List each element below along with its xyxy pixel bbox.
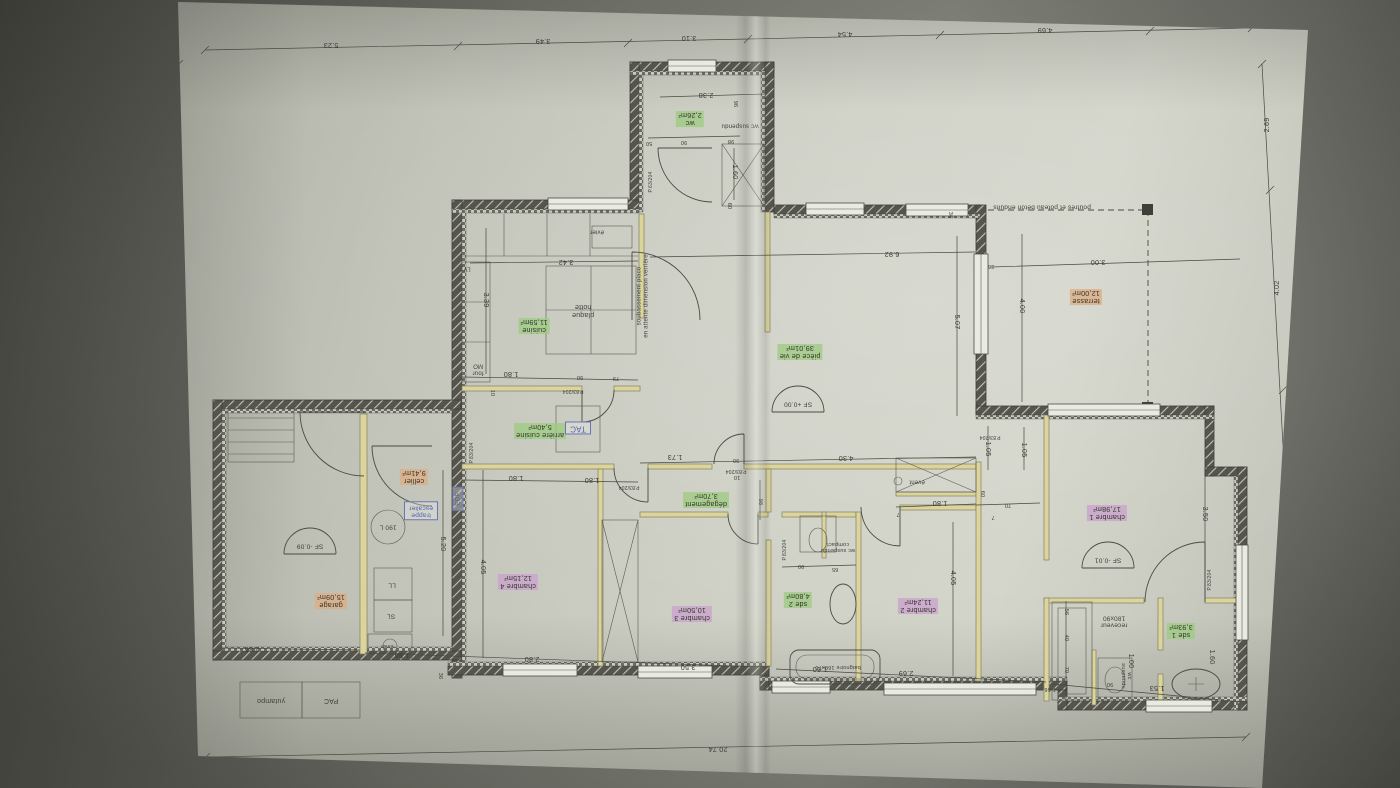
equipment-label: TAC: [565, 422, 591, 435]
annotation-text: évent: [909, 478, 925, 485]
annotation-text: P.83/204: [619, 483, 640, 489]
room-label: arrière cuisine 5,40m²: [514, 423, 566, 439]
dimension-text: 60: [979, 491, 985, 498]
room-label: sde 1 3,93m²: [1167, 623, 1195, 639]
dimension-text: 4.05: [949, 571, 957, 586]
dimension-text: 7: [991, 514, 994, 520]
dimension-text: 79: [613, 375, 620, 381]
dimension-text: 98: [757, 499, 763, 506]
dimension-text: 6.92: [885, 250, 900, 258]
annotation-text: receveur 180x90: [1101, 614, 1128, 629]
annotation-text: P.63/204: [649, 172, 655, 193]
annotation-text: évier: [381, 643, 394, 649]
doors-layer: [300, 148, 1205, 602]
annotation-text: évier: [590, 228, 604, 235]
room-label: chambre 3 10,50m²: [672, 606, 712, 622]
annotation-text: plaque hotte: [572, 302, 594, 318]
dimension-text: 98: [728, 138, 735, 144]
dimension-text: 10: [734, 474, 741, 480]
annotation-text: wc suspendu compact: [821, 541, 855, 553]
dimension-text: 1.80: [509, 474, 524, 482]
dimension-text: 70: [1005, 502, 1012, 508]
dimension-text: 65: [832, 566, 839, 572]
equipment-label: trappe escalier: [404, 502, 438, 521]
dimension-text: 3.42: [559, 258, 574, 266]
room-label: cuisine 11,59m²: [518, 318, 549, 334]
fixtures-layer: [228, 144, 1220, 718]
room-label: pièce de vie 39,01m²: [778, 344, 823, 360]
annotation-text: PAC: [324, 696, 338, 704]
dimension-text: 4.69: [1038, 26, 1053, 34]
dimension-text: 12.58: [170, 381, 178, 400]
dimension-text: 60: [726, 203, 732, 210]
dimension-text: 90: [1107, 681, 1114, 687]
annotation-text: P.83/204: [783, 540, 789, 561]
annotation-text: four MO: [472, 362, 483, 375]
annotation-text: LL: [388, 581, 396, 588]
annotation-text: P.83/204: [470, 443, 476, 464]
floor-level-marker: SF +0.00: [784, 400, 812, 407]
annotation-text: SL: [387, 612, 395, 619]
dimension-text: 70: [1063, 667, 1069, 674]
dimension-text: 2.80: [525, 655, 540, 663]
dimension-text: 3.50: [681, 663, 696, 671]
room-label: chambre 2 11,24m²: [898, 598, 938, 614]
annotation-text: P.83/204: [563, 387, 584, 393]
floor-level-marker: SF -0.01: [1095, 556, 1122, 563]
dimension-text: 2.86: [245, 645, 260, 653]
room-label: sde 2 4,80m²: [784, 592, 812, 608]
dimension-text: 10: [489, 390, 495, 397]
dimension-text: 90: [577, 374, 584, 380]
dimension-text: 2.69: [1263, 118, 1271, 133]
dimension-text: 36: [947, 212, 953, 219]
dimension-text: 1.53: [1150, 684, 1165, 692]
dimension-text: 1.86: [395, 651, 410, 659]
room-label: garage 15,09m²: [315, 593, 347, 609]
dimension-text: 1.80: [504, 370, 519, 378]
dimension-text: 4.02: [1273, 281, 1281, 296]
annotation-text: P.83/204: [726, 467, 747, 473]
annotation-text: poutres et poteau beton enduits: [993, 203, 1091, 210]
room-label: dégagement 3,70m²: [683, 492, 729, 508]
annotation-text: wc suspendu: [721, 122, 758, 129]
room-label: chambre 4 12,15m²: [498, 574, 538, 590]
dimension-text: 1.66: [1044, 686, 1056, 692]
dimension-text: 36: [437, 673, 443, 680]
dimension-text: 1.05: [1020, 443, 1028, 458]
dimension-text: 50: [646, 140, 653, 146]
terrace-layer: [988, 204, 1153, 413]
paper-sheet: wc 2,26m²wc suspendupièce de vie 39,01m²…: [0, 0, 1400, 788]
dimension-text: 5.07: [953, 315, 961, 330]
dimension-text: 7: [896, 511, 899, 517]
photo-background: wc 2,26m²wc suspendupièce de vie 39,01m²…: [0, 0, 1400, 788]
dimension-text: 1.80: [585, 476, 600, 484]
room-label: chambre 1 17,98m²: [1087, 505, 1127, 521]
annotation-text: 190 L: [379, 523, 396, 530]
dimension-text: 4.54: [838, 30, 853, 38]
dimension-text: 5.20: [439, 537, 447, 552]
dimension-text: 90: [733, 457, 740, 463]
dimension-text: 3.39: [482, 293, 490, 308]
dimension-text: 1.60: [731, 165, 739, 180]
annotation-text: soubassement placo en attente dimension …: [636, 254, 649, 338]
dimension-text: 40: [1063, 635, 1069, 642]
dimension-text: 2.38: [699, 91, 714, 99]
floor-level-marker: SF -0.09: [297, 542, 324, 549]
dimension-text: 1.80: [933, 499, 948, 507]
dimension-text: 3.49: [536, 37, 551, 45]
interior-walls-layer: [360, 212, 1238, 705]
annotation-text: yutampo: [257, 696, 285, 704]
dimension-text: 56: [1063, 609, 1069, 616]
dimension-text: 20.74: [709, 745, 728, 753]
dimension-text: 96: [732, 101, 738, 108]
annotation-text: P.83/204: [1208, 570, 1214, 591]
dimension-text: 4.00: [1018, 299, 1026, 314]
dimension-text: 3.50: [1201, 507, 1209, 522]
dimension-text: 1.60: [813, 665, 828, 673]
dimension-text: 36: [988, 263, 995, 269]
room-label: terrasse 12,00m²: [1070, 289, 1102, 305]
annotation-text: P.83/204: [980, 433, 1001, 439]
room-label: wc 2,26m²: [676, 111, 704, 127]
dimension-text: 5.23: [324, 41, 339, 49]
dimension-text: 3.00: [1091, 258, 1106, 266]
room-label: cellier 9,41m²: [400, 469, 428, 485]
dimension-text: 5.89: [1286, 533, 1294, 548]
dimension-text: 90: [681, 139, 688, 145]
equipment-label: EDF: [452, 487, 463, 511]
dimension-text: 4.05: [479, 560, 487, 575]
dimension-text: 1.00: [1127, 654, 1135, 669]
annotation-text: LV: [463, 265, 470, 272]
dimension-text: 1.73: [668, 453, 683, 461]
dimension-text: 1.05: [984, 442, 992, 457]
dimension-text: 3.10: [682, 34, 697, 42]
dimension-text: 1.60: [1208, 650, 1216, 665]
dimension-text: 2.69: [899, 669, 914, 677]
dimension-text: 4.30: [839, 454, 854, 462]
dimension-text: 90: [798, 563, 805, 569]
